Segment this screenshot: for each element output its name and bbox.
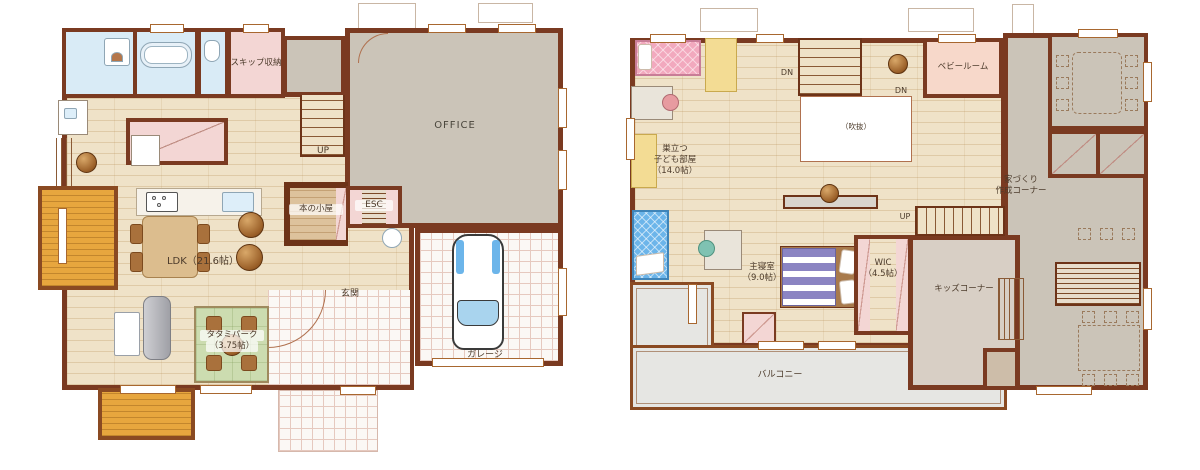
window [498, 24, 536, 33]
window [688, 284, 697, 324]
meeting-chair [1056, 99, 1069, 111]
garage-label: ガレージ [455, 350, 515, 361]
kids-desk-chair-2 [698, 240, 715, 257]
window [626, 118, 635, 160]
cooktop-burner [157, 203, 161, 207]
meeting-chair [1125, 55, 1138, 67]
dining-chair [130, 224, 143, 244]
ldk-label: LDK（21.6帖） [148, 256, 258, 269]
dining-chair [130, 252, 143, 272]
counter-shelf [1055, 262, 1141, 306]
window [1036, 386, 1092, 395]
washbasin [64, 108, 77, 119]
window [650, 34, 686, 43]
toilet-bowl [204, 40, 220, 62]
kids-bed-pillow [638, 44, 652, 70]
window [200, 385, 252, 394]
work-chair [1082, 311, 1095, 323]
kids-room-label-3: （14.0帖） [648, 166, 702, 177]
work-chair [1122, 228, 1135, 240]
wic-label-2: （4.5帖） [860, 269, 906, 280]
window [1143, 288, 1152, 330]
washer-drum [111, 52, 123, 62]
eaves-outline [908, 8, 974, 32]
eaves-outline [1012, 4, 1034, 34]
tatami-label-2: （3.75帖） [206, 341, 258, 352]
washbasin-round [382, 228, 402, 248]
window [150, 24, 184, 33]
window [938, 34, 976, 43]
making-corner-label-1: 家づくり [995, 175, 1047, 186]
dn-label-left: DN [776, 68, 798, 78]
work-chair [1104, 374, 1117, 386]
skip-storage-label: スキップ収納 [222, 58, 290, 69]
closet-2f [1096, 130, 1148, 178]
plant-pot [888, 54, 908, 74]
dining-table [142, 216, 198, 278]
window [818, 341, 856, 350]
eaves-outline [358, 3, 416, 29]
dn-label-right: DN [890, 86, 912, 96]
dining-chair [197, 224, 210, 244]
floor-stool [238, 212, 264, 238]
car-rear-glass [456, 240, 464, 274]
window [558, 268, 567, 316]
eaves-outline [700, 8, 758, 32]
up-label-2f: UP [894, 212, 916, 222]
refrigerator [131, 135, 160, 166]
making-corner-label-2: 作成コーナー [990, 186, 1052, 197]
kids-wardrobe [705, 38, 737, 92]
kids-corner-shelf [998, 278, 1024, 340]
window [558, 150, 567, 190]
car-windshield [457, 300, 499, 326]
meeting-table [1072, 52, 1122, 114]
work-table [1078, 325, 1140, 371]
esc-label: ESC [355, 200, 393, 211]
tv-board [114, 312, 140, 356]
genkan-label: 玄関 [330, 289, 370, 300]
baby-room-label: ベビールーム [928, 62, 998, 73]
cooktop-burner [152, 196, 156, 200]
window [758, 341, 804, 350]
louver-bench [56, 138, 73, 186]
kids-room-label-2: 子ども部屋 [644, 155, 706, 166]
wic-closet [858, 239, 870, 331]
closet-2f [1048, 130, 1100, 178]
plant-pot [820, 184, 839, 203]
cooktop-burner [162, 196, 166, 200]
meeting-chair [1056, 77, 1069, 89]
kids-bed-blue-pillow [636, 252, 664, 276]
window [558, 88, 567, 128]
floorplan-canvas: 玄関 スキップ収納 OFFICE ガレージ UP 本の小屋 ESC LD [0, 0, 1200, 470]
kids-corner-label: キッズコーナー [920, 284, 1008, 295]
master-label-1: 主寝室 [740, 262, 784, 273]
kids-room-label-1: 巣立つ [650, 144, 700, 155]
work-chair [1126, 374, 1139, 386]
wic-label-1: WIC [866, 258, 900, 269]
meeting-chair [1125, 77, 1138, 89]
work-chair [1078, 228, 1091, 240]
bathtub [140, 42, 192, 68]
deck-bottom [98, 388, 195, 440]
room-landing [283, 36, 345, 96]
work-chair [1126, 311, 1139, 323]
tatami-cushion [206, 355, 222, 371]
window [428, 24, 466, 33]
eaves-outline [478, 3, 533, 23]
front-door [340, 386, 376, 395]
kids-desk-chair [662, 94, 679, 111]
cooktop [146, 192, 178, 212]
work-chair [1082, 374, 1095, 386]
work-chair [1104, 311, 1117, 323]
office-label: OFFICE [420, 120, 490, 133]
window [1143, 62, 1152, 102]
wic-closet [896, 239, 908, 331]
balcony-label: バルコニー [750, 370, 810, 381]
void-label: （吹抜） [832, 122, 880, 131]
car-rear-glass [492, 240, 500, 274]
tatami-label-1: タタミパーク [200, 330, 264, 341]
kitchen-sink [222, 192, 254, 212]
tatami-cushion [241, 355, 257, 371]
meeting-chair [1056, 55, 1069, 67]
storage-box [983, 348, 1019, 390]
porch [278, 390, 378, 452]
deck-left [38, 186, 118, 290]
window [756, 34, 784, 43]
window [120, 385, 176, 394]
master-label-2: （9.0帖） [738, 273, 786, 284]
stairs-up-2f [915, 206, 1005, 236]
window [243, 24, 269, 33]
sofa [143, 296, 171, 360]
plant-pot [76, 152, 97, 173]
master-bed-blanket [782, 248, 836, 306]
book-hut-label: 本の小屋 [289, 204, 343, 215]
stairs-up-label: UP [308, 146, 338, 157]
window [58, 208, 67, 264]
meeting-chair [1125, 99, 1138, 111]
work-chair [1100, 228, 1113, 240]
stairs-dn [798, 38, 862, 96]
window [1078, 29, 1118, 38]
